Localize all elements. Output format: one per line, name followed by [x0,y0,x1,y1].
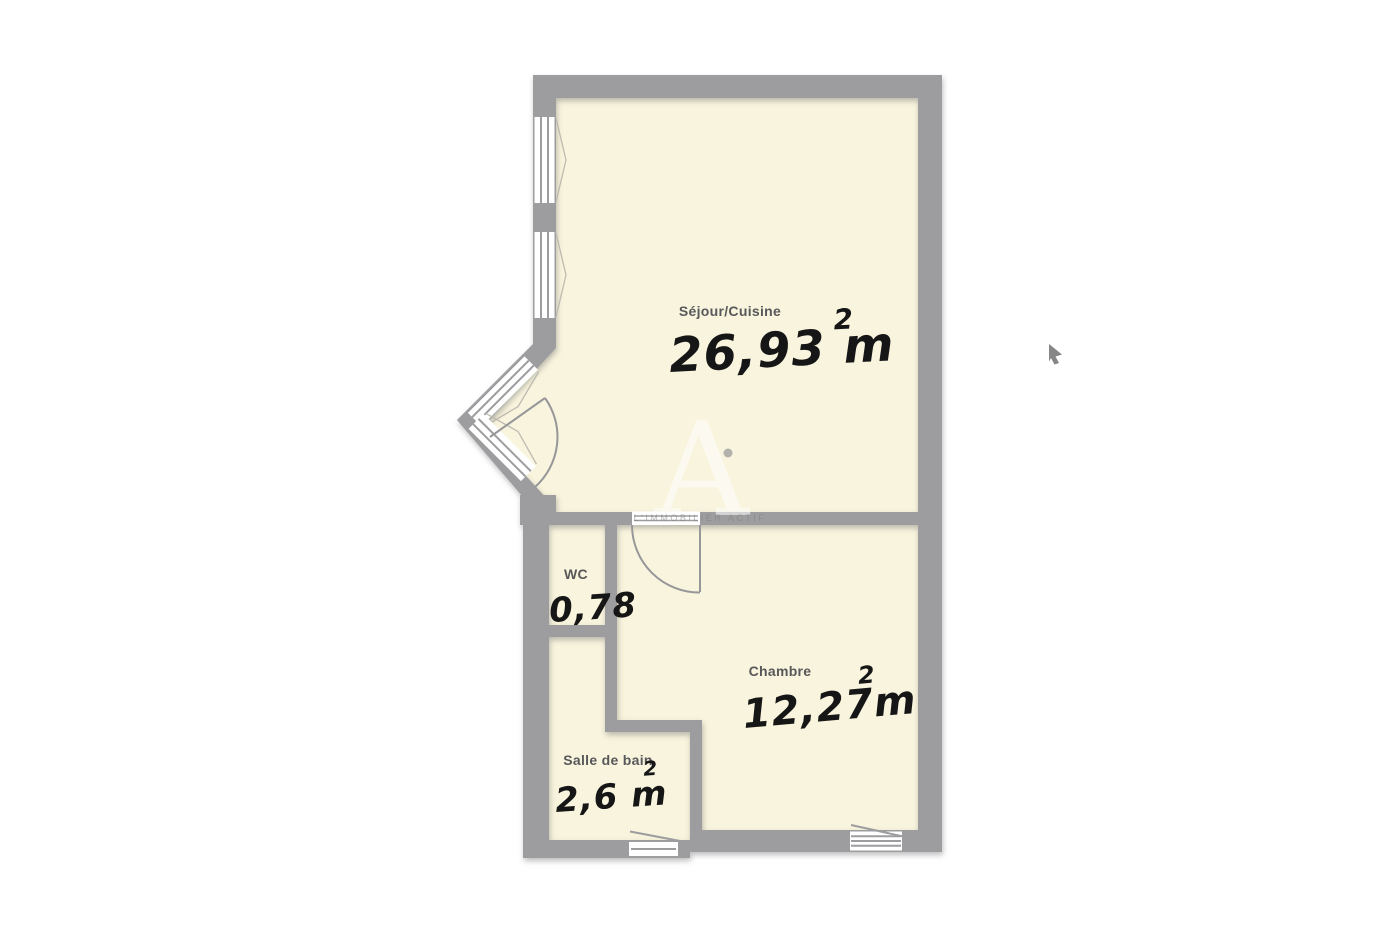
plan-center-dot [724,449,733,458]
wall-step [605,720,702,732]
label-wc: WC [564,566,588,582]
svg-text:2: 2 [857,660,877,689]
mouse-cursor [1049,344,1062,365]
svg-text:2: 2 [833,302,855,336]
label-chambre: Chambre [749,663,812,679]
svg-text:2: 2 [642,756,659,781]
svg-text:0,78: 0,78 [548,585,638,631]
floorplan-image: A L'IMMOBILIER ACTIF Séjour/Cuisine 26,9… [0,0,1400,929]
watermark-text: L'IMMOBILIER ACTIF [634,513,767,523]
area-wc: 0,78 [548,585,638,631]
label-salle-de-bain: Salle de bain [563,752,653,768]
svg-text:2,6 m: 2,6 m [554,773,669,821]
wall-top [533,75,942,98]
svg-text:26,93 m: 26,93 m [668,316,896,384]
wall-sdb-chambre [690,732,702,832]
wall-corner-chunk [520,495,556,525]
wall-chambre-bottom [690,830,942,852]
floorplan-viewer: A L'IMMOBILIER ACTIF Séjour/Cuisine 26,9… [0,0,1400,929]
label-sejour-cuisine: Séjour/Cuisine [679,303,781,319]
wall-right [918,75,942,852]
watermark-logo: A [654,394,751,546]
